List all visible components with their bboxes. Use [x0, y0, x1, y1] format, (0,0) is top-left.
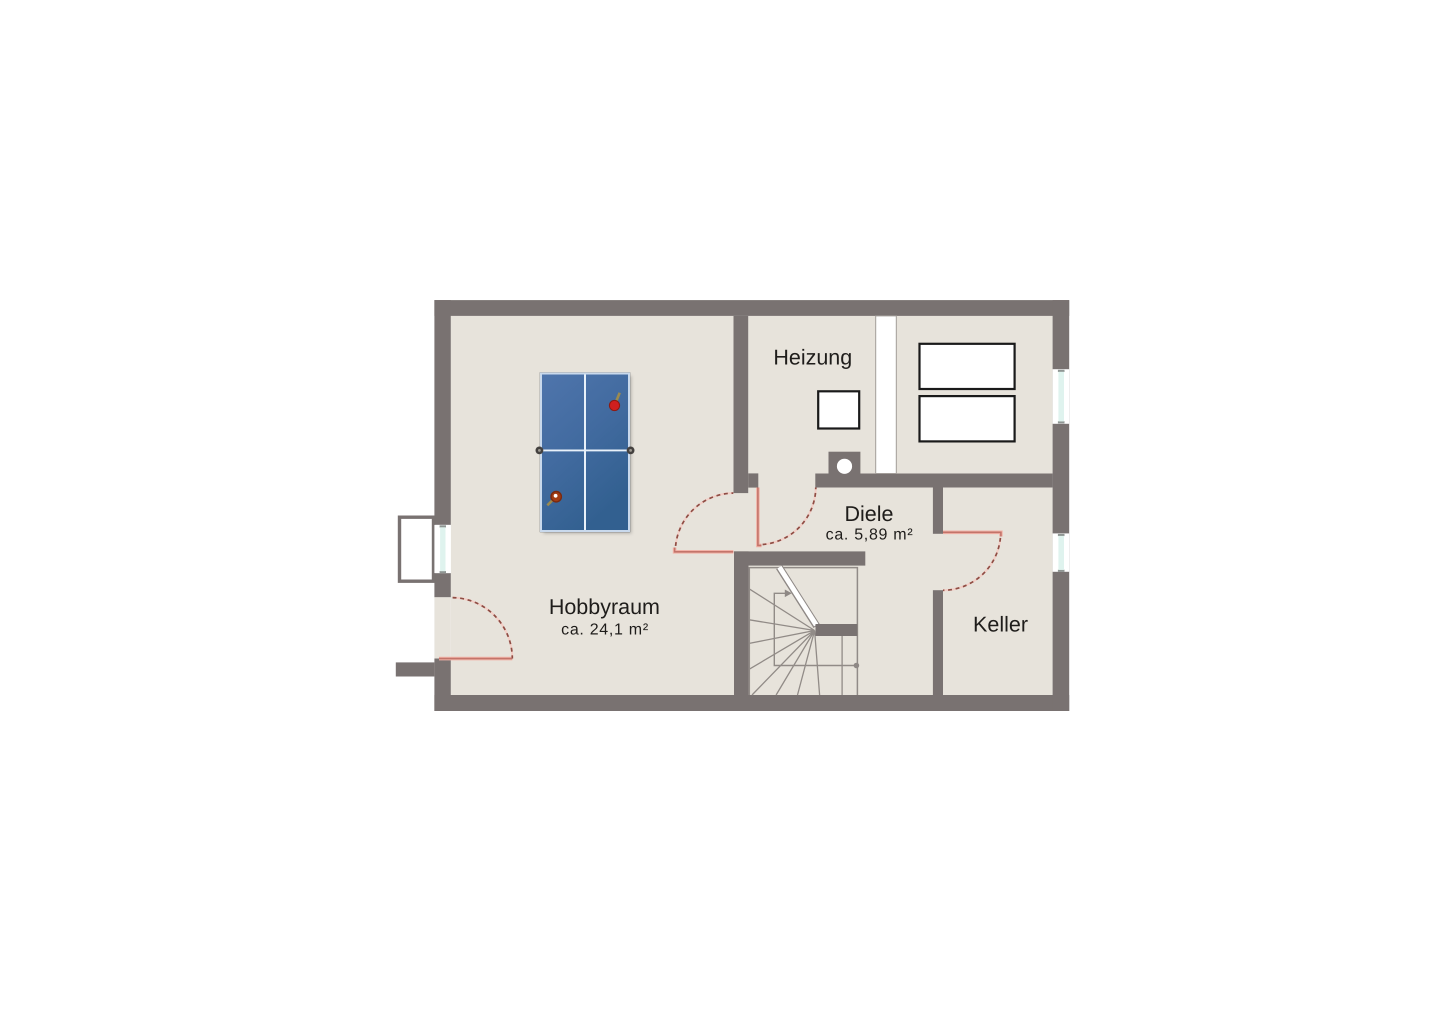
svg-text:ca. 24,1 m²: ca. 24,1 m² [561, 621, 649, 638]
svg-text:Hobbyraum: Hobbyraum [549, 595, 660, 619]
svg-text:Diele: Diele [845, 502, 894, 526]
svg-text:Heizung: Heizung [773, 345, 852, 369]
svg-text:Keller: Keller [973, 612, 1028, 636]
svg-text:ca. 5,89 m²: ca. 5,89 m² [826, 527, 914, 544]
